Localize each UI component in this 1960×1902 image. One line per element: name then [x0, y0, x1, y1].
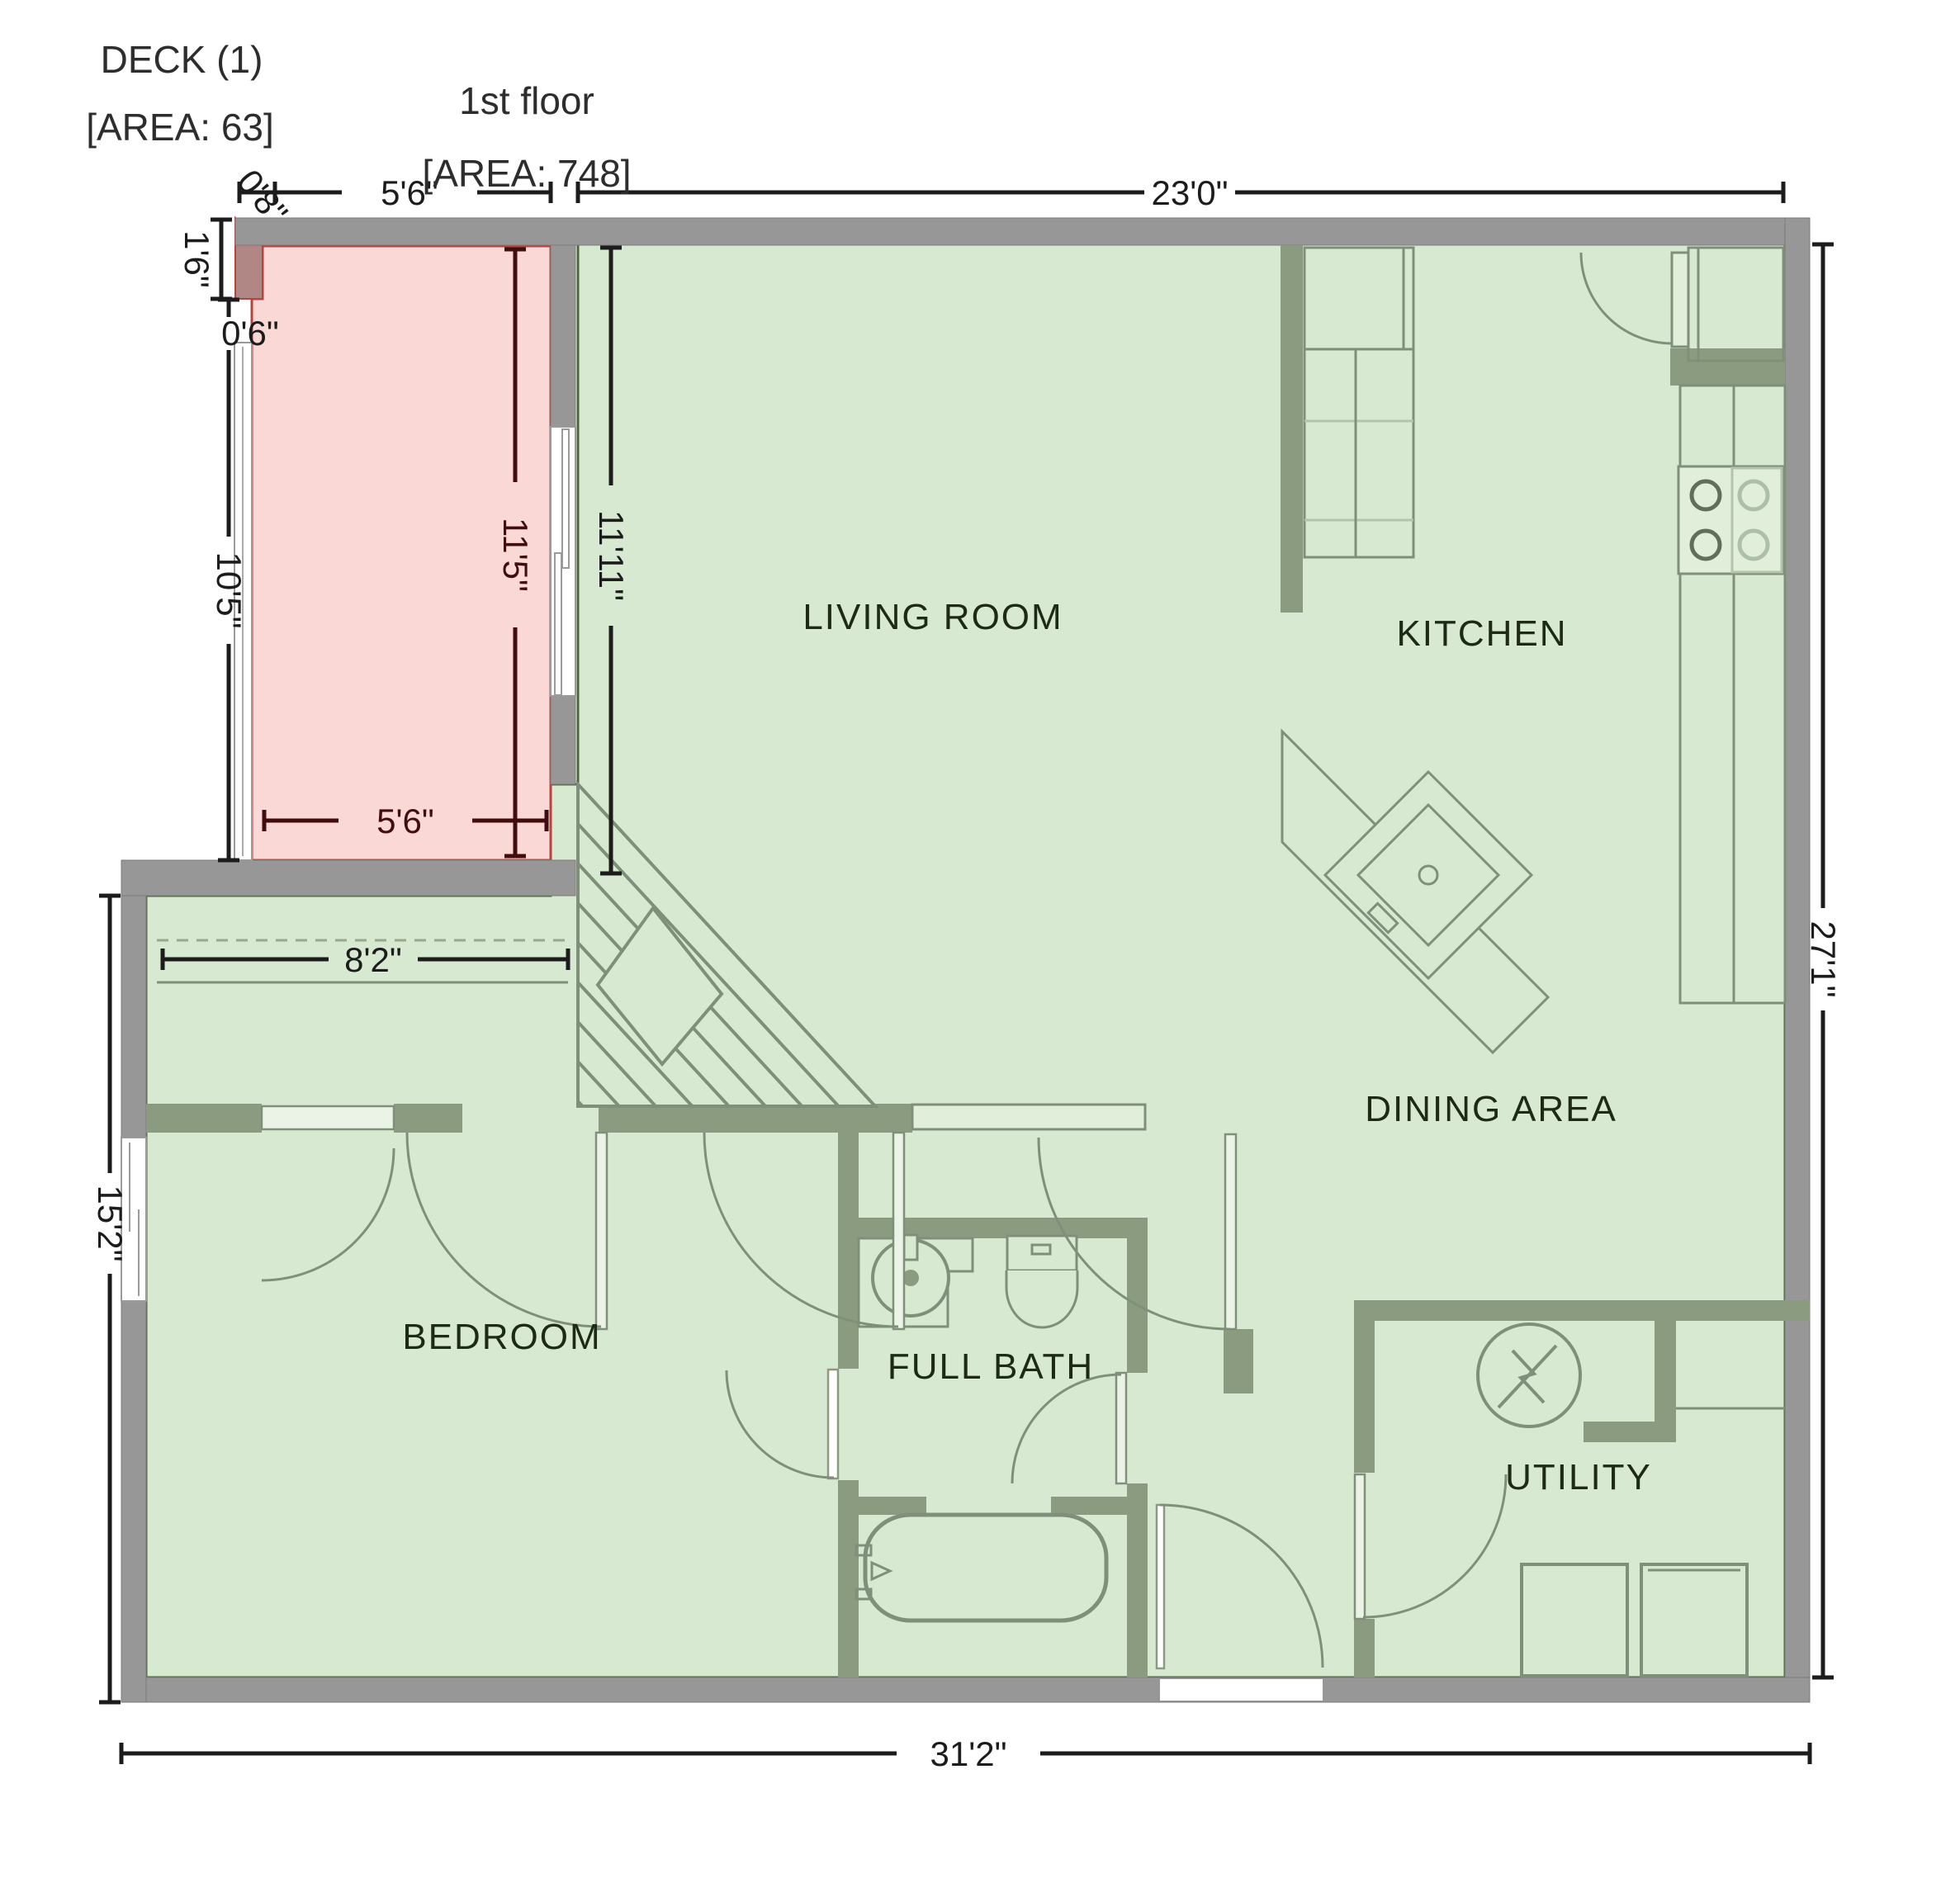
entry-door-leaf	[1157, 1505, 1164, 1668]
utility-left-wall-lower	[1354, 1619, 1375, 1677]
dim-left-side-height: 15'2"	[91, 1185, 130, 1261]
top-wall	[235, 218, 1810, 245]
bottom-wall	[121, 1677, 1810, 1702]
titles: DECK (1) [AREA: 63] 1st floor [AREA: 748…	[86, 38, 631, 195]
floor-area-label: [AREA: 748]	[422, 152, 631, 195]
dim-living-room-height: 11'11"	[592, 510, 631, 601]
utility-top-wall	[1354, 1300, 1810, 1321]
tub-stub-right	[1051, 1497, 1129, 1515]
deck-area-label: [AREA: 63]	[86, 106, 274, 149]
bath-top-wall	[838, 1218, 1148, 1238]
sliding-pane-left	[555, 553, 561, 695]
dining-area-label: DINING AREA	[1365, 1089, 1617, 1129]
center-wall-a	[146, 1104, 262, 1133]
floor-title: 1st floor	[459, 79, 594, 122]
living-room-label: LIVING ROOM	[802, 597, 1063, 637]
deck-right-wall-upper	[551, 245, 575, 427]
deck-title: DECK (1)	[101, 38, 263, 81]
bedroom-label: BEDROOM	[402, 1317, 601, 1357]
dim-right-side-height: 27'1"	[1804, 920, 1843, 997]
center-wall-c	[599, 1104, 912, 1133]
hall-door-stub-wall	[1224, 1329, 1253, 1393]
kitchen-partition-wall	[1281, 245, 1303, 613]
bedroom-bath-wall-upper	[838, 1133, 859, 1369]
hall-corridor-door-leaf	[893, 1133, 904, 1329]
entry-door-opening	[1160, 1679, 1323, 1701]
bedroom-door-leaf	[596, 1133, 607, 1329]
bedroom-bath-wall-lower	[838, 1480, 859, 1677]
dim-deck-bottom-width: 5'6"	[376, 802, 434, 840]
dim-bottom-width: 31'2"	[930, 1734, 1006, 1773]
utility-nook-wall-horiz	[1584, 1422, 1676, 1442]
bath-door-leaf	[1116, 1373, 1126, 1483]
dim-deck-left-offset: 0'6"	[221, 314, 279, 352]
pantry-door-leaf	[1672, 253, 1688, 347]
bath-west-door-leaf	[828, 1370, 838, 1479]
dim-closet-width: 8'2"	[344, 940, 402, 979]
utility-door-leaf	[1355, 1474, 1365, 1619]
hall-dining-door-leaf	[1225, 1134, 1236, 1329]
deck-right-wall-lower	[551, 696, 575, 784]
sliding-pane-right	[562, 429, 569, 568]
floor-plan-page: 0'8" 5'6" 23'0" 27'1" 31'2" 15'2" 8'2"	[0, 0, 1960, 1902]
kitchen-label: KITCHEN	[1396, 613, 1567, 654]
dim-deck-wall-stub: 1'6"	[178, 230, 216, 288]
washer	[1522, 1564, 1627, 1676]
dim-deck-inner-height: 11'5"	[496, 518, 535, 592]
tub-stub-left	[856, 1497, 926, 1515]
closet-door-leaf	[262, 1106, 394, 1129]
dim-main-top-width: 23'0"	[1151, 173, 1228, 212]
dryer	[1641, 1564, 1747, 1676]
breakfast-bar-counter	[912, 1105, 1145, 1129]
bathtub	[865, 1515, 1106, 1620]
bath-right-wall-lower	[1127, 1483, 1148, 1677]
dim-deck-left-height: 10'5"	[210, 551, 249, 628]
bath-right-wall-upper	[1127, 1218, 1148, 1373]
utility-label: UTILITY	[1505, 1457, 1652, 1497]
floor-plan-canvas: 0'8" 5'6" 23'0" 27'1" 31'2" 15'2" 8'2"	[0, 0, 1960, 1902]
bath-sink-faucet	[904, 1235, 917, 1260]
utility-left-wall-upper	[1354, 1300, 1375, 1473]
full-bath-label: FULL BATH	[888, 1346, 1094, 1387]
deck-bottom-wall	[121, 860, 575, 896]
center-wall-b	[394, 1104, 462, 1133]
